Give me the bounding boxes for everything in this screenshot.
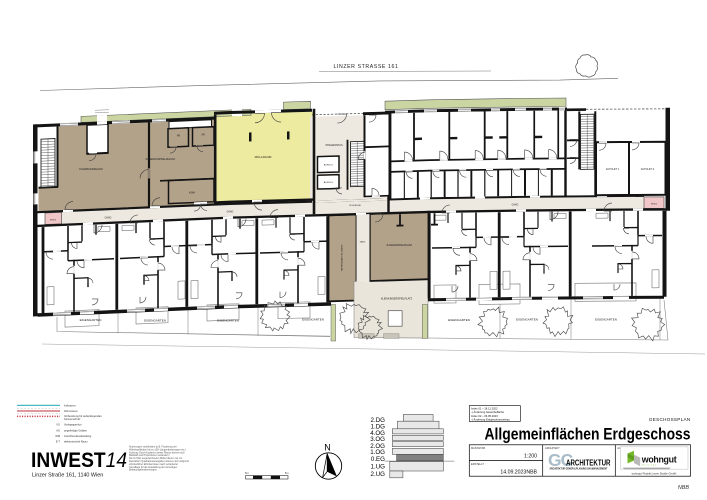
svg-text:5m: 5m	[245, 471, 249, 475]
svg-text:AR: AR	[201, 134, 205, 137]
svg-text:Anschlussbereitstellung: Anschlussbereitstellung	[64, 434, 92, 438]
svg-text:Kaltwasser: Kaltwasser	[64, 405, 76, 408]
svg-text:ERDG: ERDG	[651, 203, 657, 205]
svg-text:wohngut Projekt Linzer Straße: wohngut Projekt Linzer Straße GmbH	[632, 472, 677, 476]
svg-text:Linzer Straße 161, 1140 Wien: Linzer Straße 161, 1140 Wien	[32, 473, 103, 479]
svg-text:EIGENGARTEN: EIGENGARTEN	[516, 318, 538, 322]
svg-text:1:200: 1:200	[524, 454, 537, 460]
svg-text:MASSSTAB: MASSSTAB	[471, 446, 485, 450]
svg-text:EIGENGARTEN: EIGENGARTEN	[217, 319, 239, 323]
svg-text:GANG: GANG	[227, 211, 234, 214]
svg-text:GANG: GANG	[360, 240, 366, 243]
svg-text:14.09.2023NBB: 14.09.2023NBB	[500, 470, 537, 476]
svg-text:AUTOLIFT 1: AUTOLIFT 1	[606, 168, 620, 171]
svg-text:Vorlegegarnitur: Vorlegegarnitur	[64, 422, 82, 426]
svg-text:AUFZUG: AUFZUG	[324, 181, 333, 184]
svg-text:0.EG: 0.EG	[371, 456, 385, 463]
svg-text:KIWA: KIWA	[189, 192, 195, 195]
svg-text:AR: AR	[177, 135, 181, 138]
svg-text:ERDG: ERDG	[50, 219, 56, 221]
svg-text:5m: 5m	[285, 471, 289, 475]
svg-text:WM: WM	[55, 434, 60, 438]
svg-text:EIGENGARTEN: EIGENGARTEN	[302, 317, 324, 321]
svg-text:ERSTELLT: ERSTELLT	[471, 462, 484, 466]
svg-text:Sonnenschutz: Sonnenschutz	[64, 417, 81, 421]
svg-text:FAHRRADABSTELLRAUM: FAHRRADABSTELLRAUM	[341, 244, 344, 271]
svg-text:ARCHITEKTUR GENERALPLANUNG BAU: ARCHITEKTUR GENERALPLANUNG BAUMANAGEMENT	[550, 467, 609, 470]
svg-text:VG: VG	[56, 422, 60, 426]
svg-text:FAHRRADRAUM: FAHRRADRAUM	[79, 167, 103, 171]
svg-text:EIGENGARTEN: EIGENGARTEN	[448, 318, 470, 322]
svg-text:Index 01 – 18.11.2022: Index 01 – 18.11.2022	[471, 406, 498, 410]
svg-text:AG: AG	[56, 428, 60, 432]
svg-text:MÜLLRAUM: MÜLLRAUM	[255, 155, 272, 159]
svg-text:INWEST14: INWEST14	[31, 449, 127, 472]
svg-text:ARCHITEKTUR: ARCHITEKTUR	[566, 458, 611, 467]
svg-text:GESCHOSSPLAN: GESCHOSSPLAN	[649, 417, 691, 422]
svg-text:EIGENGARTEN: EIGENGARTEN	[595, 318, 617, 322]
svg-text:GANG: GANG	[512, 204, 519, 207]
svg-text:Index 02 – 06.05.2023: Index 02 – 06.05.2023	[471, 414, 498, 418]
svg-text:LINZER STRASSE 161: LINZER STRASSE 161	[333, 64, 398, 70]
svg-text:E-T: E-T	[56, 439, 61, 443]
svg-text:-) Änderung Erdgeschossverbau: -) Änderung Erdgeschossverbau	[471, 418, 510, 422]
svg-text:N: N	[324, 443, 331, 453]
svg-text:-) Änderung Gewerbefläche: -) Änderung Gewerbefläche	[471, 410, 505, 414]
svg-text:GANG: GANG	[105, 216, 112, 219]
svg-text:AUFZUG: AUFZUG	[324, 163, 333, 166]
svg-text:SCHLEUSE: SCHLEUSE	[349, 205, 361, 207]
svg-text:KLEINKINDERSPIELPLATZ: KLEINKINDERSPIELPLATZ	[381, 297, 413, 300]
svg-text:Bebauungsbestimmungen.: Bebauungsbestimmungen.	[129, 469, 158, 472]
svg-text:1.UG: 1.UG	[371, 464, 386, 471]
svg-text:angefertigte Gräben: angefertigte Gräben	[64, 428, 88, 432]
svg-text:STIEGENHAUS: STIEGENHAUS	[325, 144, 343, 147]
svg-text:AUTOLIFT 2: AUTOLIFT 2	[641, 168, 655, 171]
svg-text:JUGENDSPIELRAUM: JUGENDSPIELRAUM	[145, 157, 175, 161]
svg-text:EIGENGARTEN: EIGENGARTEN	[80, 318, 102, 322]
svg-text:elektrotechnik Raum: elektrotechnik Raum	[64, 439, 88, 443]
svg-text:EIGENGARTEN: EIGENGARTEN	[144, 318, 166, 322]
svg-text:Bauträger: Bauträger	[642, 464, 658, 467]
svg-text:wohngut: wohngut	[641, 454, 677, 464]
svg-text:Allgemeinflächen Erdgeschoss: Allgemeinflächen Erdgeschoss	[485, 426, 691, 444]
svg-text:JUGENDSPIELRAUM: JUGENDSPIELRAUM	[386, 243, 412, 247]
svg-text:NBB: NBB	[678, 485, 689, 491]
svg-text:Warmwasser: Warmwasser	[64, 410, 78, 413]
svg-text:2.UG: 2.UG	[371, 471, 386, 478]
